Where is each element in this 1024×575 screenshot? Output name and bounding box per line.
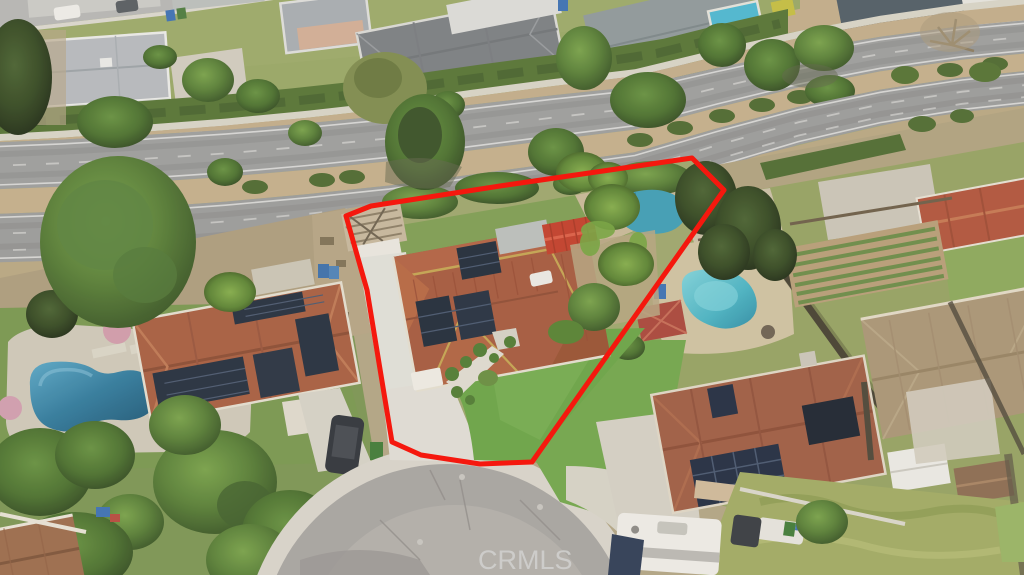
svg-text:CRMLS: CRMLS (478, 545, 573, 575)
